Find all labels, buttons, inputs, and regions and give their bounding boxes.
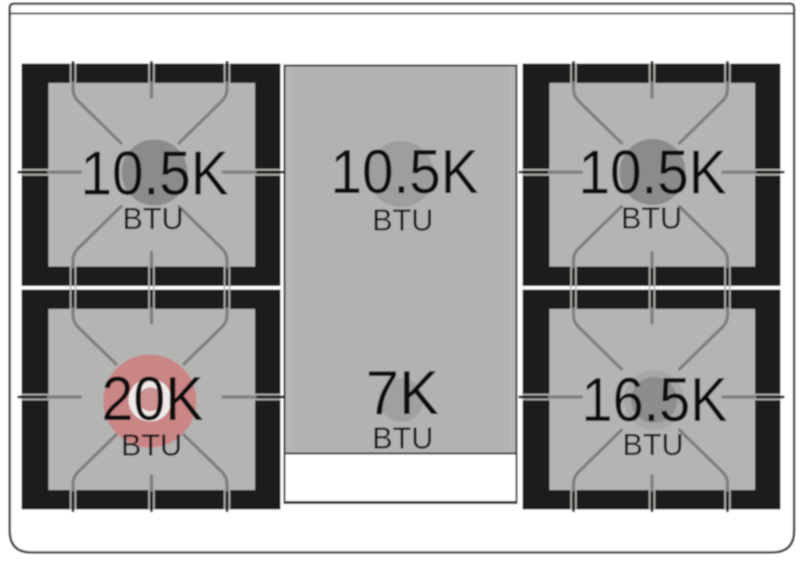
svg-text:20K: 20K bbox=[102, 365, 204, 434]
svg-text:7K: 7K bbox=[366, 359, 439, 428]
svg-text:BTU: BTU bbox=[372, 421, 433, 456]
svg-text:10.5K: 10.5K bbox=[331, 138, 479, 207]
svg-text:10.5K: 10.5K bbox=[81, 140, 229, 209]
svg-text:BTU: BTU bbox=[372, 203, 433, 238]
svg-text:BTU: BTU bbox=[621, 201, 682, 236]
svg-text:BTU: BTU bbox=[623, 427, 684, 462]
svg-text:BTU: BTU bbox=[121, 428, 182, 463]
svg-text:16.5K: 16.5K bbox=[582, 366, 728, 435]
svg-text:10.5K: 10.5K bbox=[579, 139, 727, 208]
svg-text:BTU: BTU bbox=[123, 201, 184, 236]
